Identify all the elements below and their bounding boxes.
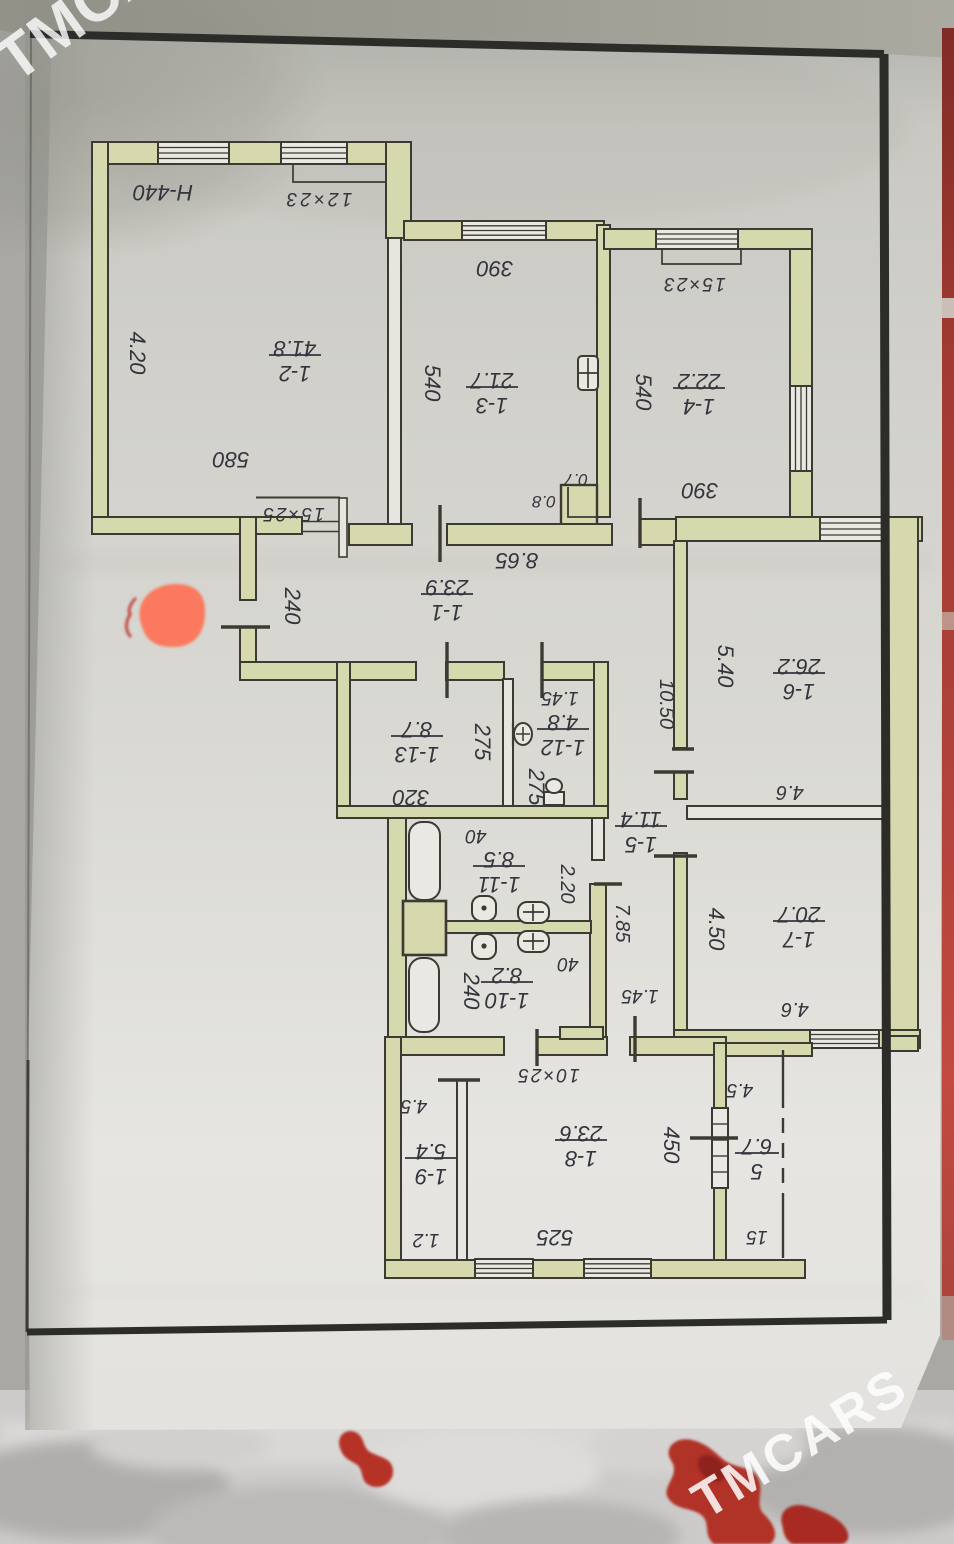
svg-text:40: 40 [557, 953, 579, 974]
svg-text:40: 40 [465, 825, 487, 846]
svg-text:12×23: 12×23 [284, 188, 352, 209]
svg-text:275: 275 [524, 768, 549, 806]
svg-text:390: 390 [476, 256, 513, 281]
svg-text:525: 525 [536, 1225, 573, 1250]
svg-text:4.5: 4.5 [726, 1079, 753, 1100]
svg-text:8.65: 8.65 [495, 548, 539, 573]
svg-text:1-4: 1-4 [683, 394, 715, 419]
svg-text:4.6: 4.6 [775, 781, 804, 803]
svg-text:1-10: 1-10 [484, 988, 529, 1013]
svg-text:1-6: 1-6 [782, 679, 815, 704]
svg-text:1-7: 1-7 [782, 927, 815, 952]
svg-text:1-12: 1-12 [541, 735, 585, 760]
svg-text:H-440: H-440 [132, 180, 193, 205]
svg-text:275: 275 [470, 723, 495, 761]
svg-text:1-9: 1-9 [415, 1164, 447, 1189]
svg-text:7.85: 7.85 [611, 904, 633, 944]
svg-text:4.5: 4.5 [400, 1095, 427, 1116]
svg-text:1-1: 1-1 [431, 600, 463, 625]
svg-text:0.7: 0.7 [564, 470, 588, 489]
svg-text:240: 240 [280, 587, 305, 625]
svg-text:5: 5 [750, 1159, 763, 1184]
svg-text:1-8: 1-8 [564, 1146, 597, 1171]
svg-text:580: 580 [212, 447, 249, 472]
svg-text:4.20: 4.20 [125, 332, 150, 376]
svg-text:5.40: 5.40 [713, 645, 738, 689]
svg-text:23.6: 23.6 [559, 1121, 604, 1146]
svg-text:21.7: 21.7 [470, 368, 515, 393]
svg-text:4.6: 4.6 [780, 998, 809, 1020]
svg-text:450: 450 [659, 1127, 684, 1164]
svg-text:1-3: 1-3 [475, 393, 508, 418]
svg-text:1-11: 1-11 [478, 872, 520, 897]
svg-text:4.50: 4.50 [704, 908, 729, 952]
svg-text:2.20: 2.20 [556, 864, 578, 904]
svg-text:1-2: 1-2 [279, 361, 311, 386]
svg-text:15×23: 15×23 [662, 273, 725, 294]
svg-text:0.8: 0.8 [532, 492, 556, 511]
svg-text:8.5: 8.5 [483, 847, 514, 872]
svg-text:240: 240 [459, 972, 484, 1010]
svg-text:540: 540 [631, 374, 656, 411]
svg-text:540: 540 [420, 365, 445, 402]
svg-text:11.4: 11.4 [620, 807, 661, 832]
svg-text:15×25: 15×25 [261, 503, 324, 524]
svg-text:41.8: 41.8 [273, 336, 317, 361]
svg-text:22.2: 22.2 [678, 369, 722, 394]
svg-text:8.2: 8.2 [492, 963, 523, 988]
svg-text:1-5: 1-5 [624, 832, 657, 857]
svg-text:26.2: 26.2 [778, 654, 822, 679]
svg-text:1.45: 1.45 [621, 985, 658, 1006]
svg-text:8.7: 8.7 [401, 717, 432, 742]
svg-text:15: 15 [746, 1226, 768, 1247]
svg-text:1-13: 1-13 [394, 742, 439, 767]
svg-text:1.2: 1.2 [412, 1229, 439, 1250]
svg-text:390: 390 [681, 478, 718, 503]
svg-text:6.7: 6.7 [741, 1134, 772, 1159]
svg-text:5.4: 5.4 [416, 1139, 447, 1164]
svg-text:20.7: 20.7 [777, 902, 822, 927]
svg-text:320: 320 [392, 785, 429, 810]
svg-text:23.9: 23.9 [426, 575, 470, 600]
svg-text:10×25: 10×25 [516, 1064, 579, 1085]
svg-text:1.45: 1.45 [541, 687, 578, 708]
svg-text:4.8: 4.8 [547, 710, 578, 735]
svg-text:10.50: 10.50 [655, 679, 677, 729]
